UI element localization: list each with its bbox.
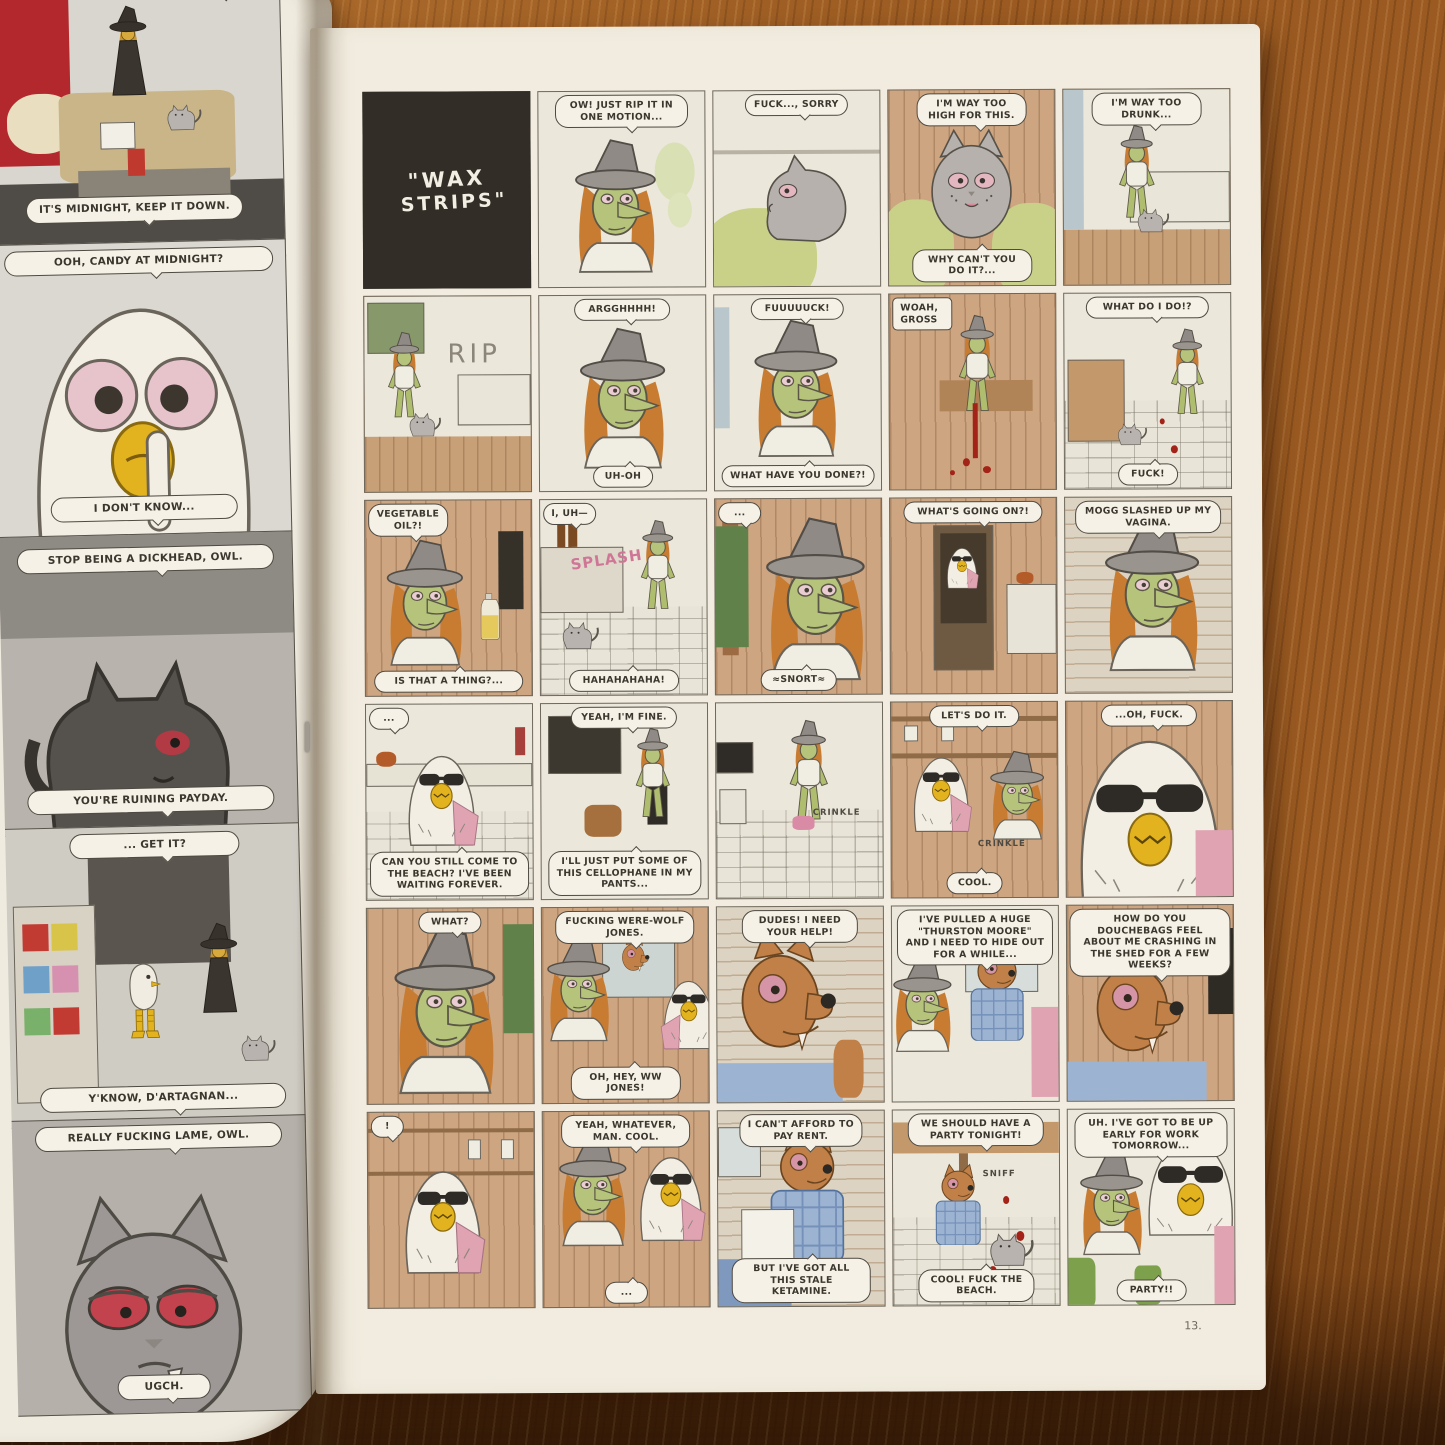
speech-bubble: ARGGHHHH!	[574, 299, 670, 321]
speech-bubble: I'M WAY TOO DRUNK...	[1092, 92, 1202, 126]
wwj-face-figure	[717, 922, 844, 1074]
speech-bubble: YEAH, I'M FINE.	[571, 706, 677, 728]
comic-panel: SPLASHI, UH—HAHAHAHAHA!	[539, 498, 708, 696]
scene-shape	[457, 374, 530, 425]
scene-shape	[714, 307, 729, 428]
scene-shape	[127, 148, 145, 175]
speech-bubble: ...	[605, 1282, 648, 1304]
speech-bubble: VEGETABLE OIL?!	[368, 503, 448, 537]
speech-bubble: I DON'T KNOW...	[50, 494, 238, 523]
speech-bubble: !	[371, 1116, 404, 1138]
speech-bubble: YEAH, WHATEVER, MAN. COOL.	[561, 1114, 691, 1148]
staple	[305, 722, 309, 752]
scene-shape	[741, 1208, 794, 1263]
speech-bubble: ≈SNORT≈	[761, 669, 837, 691]
scene-shape	[973, 403, 978, 458]
comic-panel: I'M WAY TOO DRUNK...	[1062, 88, 1231, 286]
scene-shape	[23, 966, 50, 993]
bottle-figure	[468, 590, 511, 642]
comic-panel: OW! JUST RIP IT IN ONE MOTION...	[537, 90, 706, 288]
right-page[interactable]: "WAXSTRIPS"OW! JUST RIP IT IN ONE MOTION…	[310, 24, 1266, 1394]
comic-panel: ... GET IT?Y'KNOW, D'ARTAGNAN...	[5, 822, 306, 1129]
scene-shape	[963, 458, 970, 466]
speech-bubble: COOL! FUCK THE BEACH.	[918, 1269, 1034, 1303]
speech-bubble: I'LL JUST PUT SOME OF THIS CELLOPHANE IN…	[548, 851, 701, 896]
sound-effect: SNIFF	[983, 1169, 1016, 1179]
speech-bubble: I'VE PULLED A HUGE "THURSTON MOORE" AND …	[897, 909, 1053, 966]
megg-stand-figure	[1147, 324, 1227, 420]
speech-bubble: REALLY FUCKING LAME, OWL.	[35, 1122, 282, 1153]
speech-bubble: ...OH, FUCK.	[1101, 704, 1197, 726]
strip-title: "WAX	[407, 165, 486, 193]
mogg-front-figure	[917, 117, 1027, 249]
scene-shape	[1016, 1231, 1024, 1241]
cat-small-figure	[554, 601, 604, 661]
megg-figure	[734, 310, 857, 458]
speech-bubble: FUCKING WERE-WOLF JONES.	[555, 910, 695, 944]
speech-bubble: PARTY!!	[1117, 1280, 1187, 1302]
speech-bubble: CAN YOU STILL COME TO THE BEACH? I'VE BE…	[370, 851, 530, 897]
speech-bubble: WHAT DO I DO!?	[1086, 296, 1209, 318]
scene-shape	[1032, 1007, 1059, 1097]
comic-panel: OOH, CANDY AT MIDNIGHT?I DON'T KNOW...	[0, 238, 292, 545]
scene-shape	[1003, 1196, 1010, 1204]
scene-shape	[1007, 584, 1057, 654]
scene-shape	[1171, 445, 1178, 453]
comic-panel: REALLY FUCKING LAME, OWL.UGCH.	[12, 1114, 313, 1417]
scene-shape	[557, 523, 565, 546]
speech-bubble: FUCK!	[1118, 464, 1178, 486]
comic-panel: DUDES! I NEED YOUR HELP!	[716, 906, 885, 1104]
scene-shape	[718, 1063, 843, 1104]
comic-panel: YEAH, I'M FINE.I'LL JUST PUT SOME OF THI…	[540, 702, 709, 900]
mogg-side-figure	[750, 134, 860, 266]
scene-shape	[52, 965, 79, 992]
sound-effect: CRINKLE	[978, 838, 1026, 848]
comic-panel: I CAN'T AFFORD TO PAY RENT.BUT I'VE GOT …	[717, 1110, 886, 1308]
speech-bubble: WHY CAN'T YOU DO IT?...	[912, 249, 1032, 283]
comic-panel: FUUUUUCK!WHAT HAVE YOU DONE?!	[713, 294, 882, 492]
owl-bust-figure	[388, 1143, 498, 1275]
scene-shape	[1017, 572, 1034, 584]
sound-effect: CRINKLE	[813, 808, 861, 818]
megg-figure	[977, 745, 1057, 841]
scene-shape	[1196, 830, 1234, 898]
speech-bubble: OH, HEY, WW JONES!	[571, 1066, 681, 1100]
scene-shape	[51, 924, 78, 951]
comic-panel: ARGGHHHH!UH-OH	[538, 294, 707, 492]
comic-panel: UH. I'VE GOT TO BE UP EARLY FOR WORK TOM…	[1067, 1108, 1236, 1306]
witch-mini-figure	[177, 920, 261, 1020]
speech-bubble: WE SHOULD HAVE A PARTY TONIGHT!	[908, 1113, 1044, 1147]
speech-bubble: HOW DO YOU DOUCHEBAGS FEEL ABOUT ME CRAS…	[1069, 908, 1230, 977]
scene-shape	[100, 122, 136, 150]
comic-panel: ...CAN YOU STILL COME TO THE BEACH? I'VE…	[365, 703, 534, 901]
comic-panel: WOAH, GROSS	[888, 293, 1057, 491]
owl-mini-figure	[101, 945, 185, 1045]
owl-bust-figure	[901, 737, 981, 833]
speech-bubble: UH-OH	[593, 466, 653, 488]
comic-panel: HOW DO YOU DOUCHEBAGS FEEL ABOUT ME CRAS…	[1066, 904, 1235, 1102]
comic-panel: FUCK..., SORRY	[712, 90, 881, 288]
speech-bubble: FUCK..., SORRY	[745, 94, 848, 116]
cat-small-figure	[232, 1014, 280, 1071]
comic-panel: MOGG SLASHED UP MY VAGINA.	[1064, 496, 1233, 694]
cat-small-figure	[1111, 407, 1151, 455]
comic-grid: "WAXSTRIPS"OW! JUST RIP IT IN ONE MOTION…	[362, 88, 1235, 1309]
speech-bubble: OW! JUST RIP IT IN ONE MOTION...	[555, 94, 688, 128]
comic-panel: YEAH, WHATEVER, MAN. COOL....	[542, 1110, 711, 1308]
speech-bubble: ...	[369, 708, 409, 730]
speech-bubble: WHAT HAVE YOU DONE?!	[722, 465, 875, 487]
scene-shape	[1067, 1258, 1095, 1306]
scene-shape	[983, 466, 991, 474]
comic-panel: "WAXSTRIPS"	[362, 91, 531, 289]
megg-figure	[742, 506, 883, 682]
speech-bubble: COOL.	[946, 872, 1003, 894]
speech-bubble: IT'S MIDNIGHT, KEEP IT DOWN.	[26, 194, 243, 224]
scene-shape	[1159, 418, 1164, 424]
cat-small-figure	[158, 84, 206, 141]
comic-panel: NG ON?IT'S MIDNIGHT, KEEP IT DOWN.	[0, 0, 286, 263]
scene-shape	[1063, 90, 1084, 230]
comic-panel: !	[367, 1111, 536, 1309]
scene-shape	[515, 728, 525, 755]
scene-shape	[834, 1039, 864, 1098]
sound-effect: RIP	[447, 339, 501, 369]
speech-bubble: ... GET IT?	[70, 831, 240, 860]
comic-panel: FUCKING WERE-WOLF JONES.OH, HEY, WW JONE…	[541, 906, 710, 1104]
comic-panel: WHAT?	[366, 907, 535, 1105]
speech-bubble: BUT I'VE GOT ALL THIS STALE KETAMINE.	[732, 1258, 872, 1303]
scene-shape	[720, 789, 747, 824]
speech-bubble: WHAT?	[418, 911, 481, 933]
comic-panel: ...≈SNORT≈	[714, 498, 883, 696]
scene-shape	[501, 1139, 514, 1159]
comic-panel: ...OH, FUCK.	[1065, 700, 1234, 898]
speech-bubble: WHAT'S GOING ON?!	[903, 501, 1043, 523]
scene-shape	[950, 470, 955, 476]
megg-stand-figure	[611, 723, 694, 823]
speech-bubble: UGCH.	[117, 1373, 211, 1400]
comic-panel: I'VE PULLED A HUGE "THURSTON MOORE" AND …	[891, 905, 1060, 1103]
scene-shape	[53, 1007, 80, 1034]
scene-shape	[716, 742, 753, 773]
scene-shape	[24, 1008, 51, 1035]
left-page[interactable]: NG ON?IT'S MIDNIGHT, KEEP IT DOWN.OOH, C…	[0, 0, 332, 1442]
speech-bubble: Y'KNOW, D'ARTAGNAN...	[40, 1083, 287, 1114]
megg-figure	[555, 130, 675, 274]
owl-bust-figure	[652, 962, 710, 1050]
cat-small-figure	[1130, 191, 1173, 243]
speech-bubble: WOAH, GROSS	[892, 297, 952, 330]
speech-bubble: HAHAHAHAHA!	[569, 670, 679, 692]
scene-shape	[1068, 1061, 1208, 1102]
comic-panel: STOP BEING A DICKHEAD, OWL.YOU'RE RUININ…	[0, 530, 299, 837]
page-number: 13.	[1184, 1319, 1202, 1332]
speech-bubble: I'M WAY TOO HIGH FOR THIS.	[917, 93, 1027, 127]
comic-panel: SNIFFWE SHOULD HAVE A PARTY TONIGHT!COOL…	[892, 1109, 1061, 1307]
comic-panel: CRINKLE	[715, 702, 884, 900]
cat-small-figure	[401, 394, 444, 446]
left-page-panels: NG ON?IT'S MIDNIGHT, KEEP IT DOWN.OOH, C…	[0, 0, 332, 1442]
speech-bubble: ...	[718, 502, 761, 524]
scene-shape	[793, 816, 815, 830]
speech-bubble: IS THAT A THING?...	[374, 671, 523, 693]
speech-bubble: I, UH—	[543, 503, 596, 525]
comic-panel: WHAT DO I DO!?FUCK!	[1063, 292, 1232, 490]
scene-shape	[1214, 1226, 1234, 1304]
megg-figure	[369, 532, 482, 668]
comic-panel: I'M WAY TOO HIGH FOR THIS.WHY CAN'T YOU …	[887, 89, 1056, 287]
megg-figure	[541, 931, 626, 1043]
comic-panel: WHAT'S GOING ON?!	[889, 497, 1058, 695]
comic-panel: CRINKLELET'S DO IT.COOL.	[890, 701, 1059, 899]
speech-bubble: FUUUUUCK!	[751, 298, 844, 320]
scene-shape	[22, 924, 49, 951]
comic-panel: RIP	[363, 295, 532, 493]
owl-bust-figure	[393, 732, 490, 848]
owl-bust-figure	[940, 537, 983, 589]
speech-bubble: I CAN'T AFFORD TO PAY RENT.	[739, 1114, 862, 1148]
comic-panel: VEGETABLE OIL?!IS THAT A THING?...	[364, 499, 533, 697]
megg-figure	[559, 319, 686, 471]
megg-figure	[370, 916, 520, 1096]
speech-bubble: LET'S DO IT.	[929, 705, 1019, 727]
speech-bubble: UH. I'VE GOT TO BE UP EARLY FOR WORK TOM…	[1074, 1112, 1227, 1157]
speech-bubble: MOGG SLASHED UP MY VAGINA.	[1075, 500, 1221, 534]
speech-bubble: DUDES! I NEED YOUR HELP!	[742, 910, 858, 944]
